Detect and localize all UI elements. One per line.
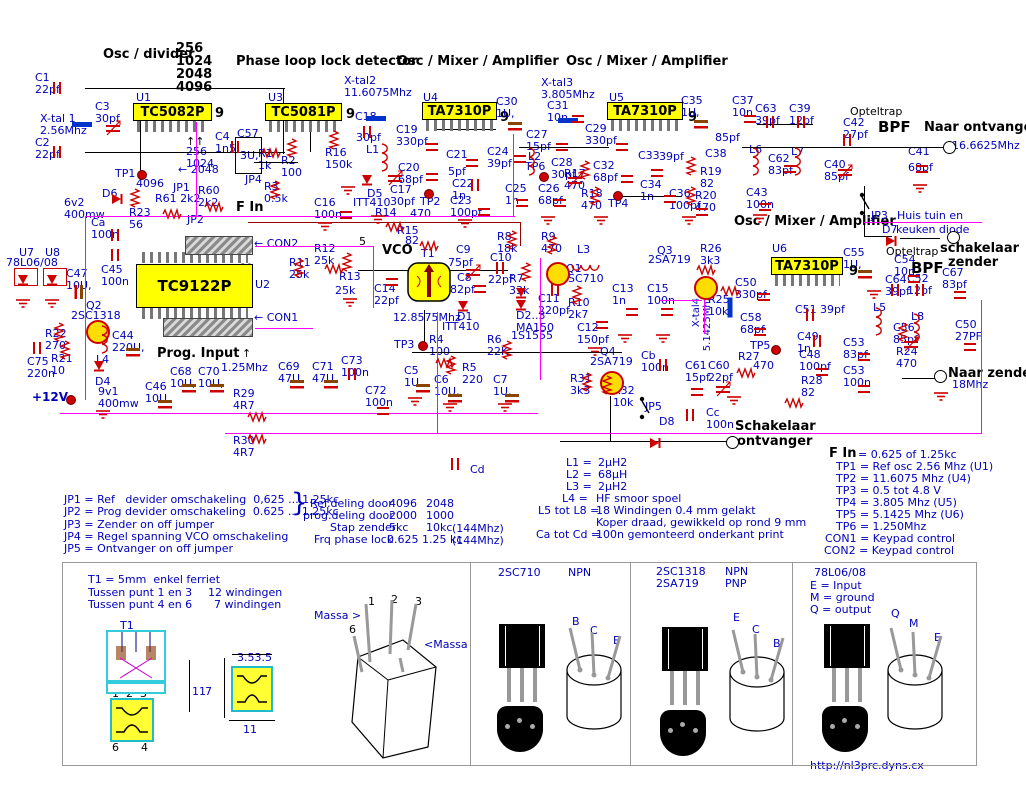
resistor-symbol: [57, 341, 76, 359]
capacitor-symbol: [474, 278, 486, 297]
capacitor-symbol: [626, 301, 638, 320]
wire: [540, 258, 541, 380]
connector-circle: [726, 436, 739, 449]
resistor-symbol: [248, 406, 266, 425]
package-lead: [683, 671, 687, 705]
pin-dot: [517, 718, 522, 723]
transistor-can-3d: [887, 644, 944, 740]
schematic-label: 5kc: [389, 522, 408, 534]
resistor-symbol: [504, 231, 523, 249]
ic-pins: [611, 120, 680, 131]
capacitor-symbol: [377, 400, 389, 419]
schematic-label: TP6 = 1.250Mhz: [836, 521, 926, 533]
resistor-symbol: [785, 392, 803, 411]
schematic-label: X-tal4: [692, 298, 703, 327]
pin-dot: [680, 722, 685, 727]
schematic-label: 470: [410, 208, 431, 220]
panel-divider: [792, 562, 793, 766]
schematic-label: L4 =: [562, 493, 588, 505]
inductor-symbol: [871, 308, 881, 339]
connector-circle: [943, 141, 956, 154]
schematic-label: 1000: [426, 510, 454, 522]
schematic-label: JP4: [245, 174, 262, 186]
schematic-label: X-tal3 3.805Mhz: [541, 77, 595, 100]
capacitor-symbol: [655, 359, 674, 371]
wire: [845, 147, 945, 148]
schematic-label: Osc / Mixer / Amplifier: [566, 55, 728, 69]
schematic-label: 9: [215, 107, 224, 121]
schematic-label: C38: [705, 148, 727, 160]
testpoint-dot: [613, 191, 623, 201]
resistor-symbol: [127, 189, 146, 207]
capacitor-symbol: [758, 286, 770, 305]
capacitor-symbol: [596, 314, 608, 333]
ground-symbol: [656, 328, 670, 347]
capacitor-symbol: [514, 148, 526, 167]
schematic-label: 39pf: [820, 304, 845, 316]
schematic-label: C61 15pf: [685, 360, 710, 383]
schematic-label: 78L06/08: [6, 257, 58, 269]
ground-symbol: [371, 209, 385, 228]
electrolytic-capacitor-symbol: [858, 264, 872, 283]
transistor-bottom-view: [660, 710, 706, 756]
capacitor-symbol: [556, 136, 568, 155]
ground-symbol: [753, 208, 767, 227]
wire: [85, 216, 515, 217]
transistor-can-3d: [729, 646, 786, 742]
schematic-label: U2: [255, 279, 270, 291]
wire: [424, 310, 425, 344]
capacitor-symbol: [621, 168, 633, 187]
schematic-label: prog.deling door: [303, 510, 394, 522]
capacitor-symbol: [554, 192, 566, 211]
schematic-label: Ref.deling door: [310, 498, 393, 510]
package-detail-line: [668, 629, 669, 669]
schematic-label: ← 2048: [178, 164, 219, 176]
resistor-symbol: [737, 362, 755, 381]
electrolytic-capacitor-symbol: [126, 342, 140, 361]
ic-u2: TC9122P: [136, 264, 253, 308]
schematic-label: 5pf: [448, 166, 466, 178]
connector-circle: [934, 370, 947, 383]
schematic-label: = 0.625 of 1.25kc: [858, 449, 957, 461]
schematic-label: TP5 = 5.1425 Mhz (U6): [836, 509, 964, 521]
capacitor-symbol: [696, 201, 708, 220]
resistor-symbol: [544, 236, 563, 254]
ground-symbol: [16, 293, 30, 312]
package-lead: [696, 671, 700, 705]
package-detail-line: [505, 626, 506, 666]
resistor-symbol: [518, 263, 537, 281]
diode-symbol: [110, 190, 124, 209]
schematic-label: R5 220: [462, 362, 483, 385]
schematic-label: 2000: [389, 510, 417, 522]
capacitor-symbol: [344, 368, 363, 380]
ground-symbol: [618, 328, 632, 347]
schematic-label: X-tal2 11.6075Mhz: [344, 75, 412, 98]
schematic-label: 0.625: [387, 534, 419, 546]
resistor-symbol: [579, 373, 598, 391]
capacitor-symbol: [447, 458, 466, 470]
resistor-symbol: [599, 376, 618, 394]
schematic-label: 16.6625Mhz: [952, 140, 1020, 152]
wire: [255, 328, 313, 329]
package-lead: [520, 668, 524, 702]
schematic-label: Huis tuin en: [897, 210, 963, 222]
dimension-line: [224, 658, 225, 718]
wire: [85, 88, 285, 89]
electrolytic-capacitor-symbol: [508, 116, 522, 135]
wire: [981, 300, 982, 434]
vco-transformer-box: [407, 262, 451, 302]
panel-divider: [470, 562, 471, 766]
t1-base-drawing: [106, 682, 166, 694]
ic-pins: [426, 120, 494, 131]
schematic-label: HF smoor spoel: [596, 493, 681, 505]
schematic-label: 82pf: [450, 284, 475, 296]
testpoint-dot: [418, 341, 428, 351]
ic-pins: [137, 121, 209, 132]
ground-symbol: [318, 216, 332, 235]
capacitor-symbol: [478, 201, 490, 220]
wire: [513, 134, 514, 217]
capacitor-symbol: [908, 268, 920, 287]
capacitor-symbol: [793, 116, 812, 128]
con2-connector: [185, 236, 253, 255]
capacitor-symbol: [954, 284, 966, 303]
schematic-label: 9: [346, 108, 355, 122]
capacitor-symbol: [572, 108, 584, 127]
capacitor-symbol: [616, 136, 628, 155]
electrolytic-capacitor-symbol: [324, 374, 338, 393]
ic-u5: TA7310P: [607, 102, 683, 120]
capacitor-symbol: [227, 141, 246, 153]
schematic-label: 100n gemonteerd onderkant print: [596, 529, 784, 541]
pin-dot: [530, 724, 535, 729]
trimmer-capacitor-symbol: [388, 170, 404, 190]
schematic-label: 10kc: [426, 522, 452, 534]
transistor-package-front: [499, 624, 545, 668]
capacitor-symbol: [839, 134, 858, 146]
schematic-label: 18Mhz: [952, 379, 988, 391]
schematic-label: 18 Windingen 0.4 mm gelakt: [596, 505, 756, 517]
capacitor-symbol: [466, 152, 478, 171]
con1-connector: [163, 318, 253, 337]
t1-winding-drawing: [106, 630, 166, 682]
ic-u6: TA7310P: [771, 257, 843, 275]
schematic-label: 39pf: [659, 151, 684, 163]
testpoint-dot: [771, 345, 781, 355]
schematic-label: U3: [268, 92, 283, 104]
diode-symbol: [42, 273, 61, 287]
jumper-switch: [638, 396, 650, 424]
schematic-label: 2SA719: [648, 254, 691, 266]
inductor-symbol: [748, 148, 758, 179]
electrolytic-capacitor-symbol: [694, 114, 708, 133]
dimension-line: [229, 720, 275, 721]
schematic-label: TP1: [115, 168, 135, 180]
schematic-label: Stap zender: [330, 522, 396, 534]
diode-symbol: [511, 298, 530, 312]
ground-symbol: [96, 404, 110, 423]
resistor-symbol: [326, 131, 345, 149]
wire: [560, 441, 728, 442]
capacitor-symbol: [784, 158, 796, 177]
electrolytic-capacitor-symbol: [182, 378, 196, 397]
inductor-symbol: [377, 144, 387, 175]
capacitor-symbol: [49, 82, 68, 94]
schematic-label: Phase loop lock detector: [236, 55, 417, 69]
diode-symbol: [13, 273, 32, 287]
testpoint-dot: [66, 395, 76, 405]
schematic-label: JP3 = Zender on off jumper: [64, 519, 214, 531]
ferrite-core-drawing: [231, 666, 273, 712]
capacitor-symbol: [29, 342, 48, 354]
schematic-label: ← CON1: [254, 312, 298, 324]
schematic-label: 1.25Mhz: [221, 362, 268, 374]
capacitor-symbol: [516, 192, 528, 211]
schematic-label: Cd: [470, 464, 485, 476]
wire: [225, 433, 982, 434]
pin-dot: [842, 718, 847, 723]
crystal-symbol: [728, 298, 733, 318]
ground-symbol: [408, 391, 422, 410]
resistor-symbol: [499, 341, 518, 359]
ic-u3: TC5081P: [265, 103, 342, 121]
schematic-label: 256 1024 2048 4096: [176, 42, 212, 94]
ground-symbol: [588, 341, 602, 360]
pin-dot: [830, 724, 835, 729]
wire: [358, 270, 410, 271]
schematic-label: 68µH: [598, 469, 627, 481]
capacitor-symbol: [964, 336, 976, 355]
schematic-label: ↑: [242, 348, 251, 360]
resistor-symbol: [569, 286, 588, 304]
schematic-label: C33: [638, 150, 660, 162]
connector-circle: [947, 231, 960, 244]
resistor-symbol: [697, 259, 715, 278]
schematic-label: F In: [829, 447, 857, 461]
package-detail-line: [830, 626, 831, 666]
capacitor-symbol: [426, 136, 438, 155]
crystal-symbol: [366, 116, 386, 121]
wire: [373, 246, 374, 308]
wire: [864, 222, 982, 223]
diode-symbol: [89, 359, 108, 373]
capacitor-symbol: [661, 301, 673, 320]
schematic-label: L1 =: [566, 457, 592, 469]
schematic-label: Schakelaar: [735, 420, 816, 434]
capacitor-symbol: [682, 409, 701, 421]
wire: [900, 238, 940, 239]
capacitor-symbol: [651, 162, 663, 181]
pin-dot: [693, 728, 698, 733]
resistor-symbol: [248, 428, 266, 447]
resistor-symbol: [267, 181, 286, 199]
package-lead: [533, 668, 537, 702]
schematic-label: schakelaar: [940, 242, 1019, 256]
ground-symbol: [45, 293, 59, 312]
pin-dot: [505, 724, 510, 729]
resistor-symbol: [205, 196, 223, 215]
schematic-label: Cc 100n: [706, 407, 734, 430]
schematic-label: C34 1n: [640, 179, 662, 202]
electrolytic-capacitor-symbol: [290, 374, 304, 393]
jumper-switch: [858, 192, 870, 220]
transistor-package-front: [824, 624, 870, 668]
resistor-symbol: [683, 157, 702, 175]
package-detail-line: [864, 626, 865, 666]
schematic-label: 2048: [426, 498, 454, 510]
resistor-symbol: [51, 323, 70, 341]
ic-u4: TA7310P: [422, 102, 497, 120]
electrolytic-capacitor-symbol: [158, 394, 172, 413]
schematic-label: BPF: [878, 120, 911, 136]
ic-pins: [775, 275, 840, 286]
schematic-canvas: Osc / divider256 1024 2048 4096Phase loo…: [0, 0, 1026, 786]
capacitor-symbol: [816, 361, 828, 380]
schematic-label: Koper draad, gewikkeld op rond 9 mm: [596, 517, 806, 529]
schematic-label: 470: [753, 360, 774, 372]
transistor-bottom-view: [497, 706, 543, 752]
schematic-label: F In: [236, 201, 264, 215]
resistor-symbol: [721, 280, 739, 299]
package-lead: [507, 668, 511, 702]
resistor-symbol: [163, 203, 181, 222]
inductor-symbol: [97, 326, 107, 357]
schematic-label: (144Mhz): [452, 535, 504, 547]
schematic-label: JP4 = Regel spanning VCO omschakeling: [64, 531, 288, 543]
ic-u1: TC5082P: [133, 103, 212, 121]
schematic-label: 2µH2: [598, 457, 627, 469]
pin-dot: [855, 724, 860, 729]
electrolytic-capacitor-symbol: [70, 285, 89, 299]
ground-symbol: [867, 284, 881, 303]
wire: [704, 298, 705, 334]
schematic-label: TP3: [394, 339, 414, 351]
schematic-label: U1: [136, 92, 151, 104]
resistor-symbol: [587, 187, 606, 205]
transistor-can-3d: [566, 644, 623, 740]
ground-symbol: [541, 210, 555, 229]
schematic-label: U6: [772, 243, 787, 255]
schematic-label: 4096: [389, 498, 417, 510]
dimension-line: [189, 660, 190, 712]
schematic-label: 82: [405, 235, 419, 247]
package-lead: [858, 668, 862, 702]
wire: [437, 312, 438, 434]
schematic-label: JP3: [871, 210, 888, 222]
ground-symbol: [682, 210, 696, 229]
resistor-symbol: [386, 216, 404, 235]
inductor-symbol: [568, 260, 599, 270]
diode-symbol: [453, 299, 472, 313]
schematic-label: L5 tot L8 =: [538, 505, 599, 517]
schematic-label: D8: [659, 416, 674, 428]
schematic-label: Prog. Input: [157, 347, 240, 361]
panel-divider: [630, 562, 631, 766]
capacitor-symbol: [744, 108, 756, 127]
capacitor-symbol: [359, 126, 378, 138]
trimmer-capacitor-symbol: [838, 164, 854, 184]
schematic-label: C32 68pf: [593, 160, 618, 183]
capacitor-symbol: [858, 378, 870, 397]
wire: [610, 396, 611, 442]
capacitor-symbol: [49, 146, 68, 158]
capacitor-symbol: [691, 381, 703, 400]
ground-symbol: [727, 390, 741, 409]
schematic-label: +12V: [32, 391, 68, 404]
schematic-label: C21: [446, 149, 468, 161]
capacitor-symbol: [107, 229, 126, 241]
schematic-label: Osc / Mixer / Amplifier: [397, 55, 559, 69]
capacitor-symbol: [887, 284, 906, 296]
diode-symbol: [357, 173, 376, 187]
trimmer-capacitor-symbol: [568, 172, 584, 192]
capacitor-symbol: [107, 249, 126, 261]
transistor-circle: [546, 262, 570, 286]
capacitor-symbol: [467, 179, 486, 191]
capacitor-symbol: [754, 321, 766, 340]
package-lead: [845, 668, 849, 702]
schematic-label: C24 39pf: [487, 146, 512, 169]
wire: [85, 216, 86, 400]
trimmer-capacitor-symbol: [904, 336, 920, 356]
schematic-label: L3: [577, 244, 590, 256]
testpoint-dot: [424, 189, 434, 199]
schematic-label: C9: [456, 244, 471, 256]
crystal-symbol: [72, 122, 92, 127]
ground-symbol: [458, 213, 472, 232]
schematic-label: C11 220pf: [538, 293, 570, 316]
schematic-label: CON2 = Keypad control: [824, 545, 954, 557]
schematic-label: TP1 = Ref osc 2.56 Mhz (U1): [836, 461, 993, 473]
schematic-label: R2 100: [281, 155, 302, 178]
schematic-label: 1S1555: [511, 330, 553, 342]
capacitor-symbol: [386, 271, 398, 290]
ground-symbol: [498, 397, 512, 416]
ground-symbol: [594, 210, 608, 229]
schematic-label: Ca tot Cd =: [536, 529, 600, 541]
capacitor-symbol: [547, 284, 566, 296]
schematic-label: Naar ontvanger: [924, 121, 1026, 135]
schematic-label: JP5 = Ontvanger on off jumper: [64, 543, 233, 555]
resistor-symbol: [339, 253, 358, 271]
schematic-label: L2 =: [566, 469, 592, 481]
schematic-label: 85pf: [715, 132, 740, 144]
schematic-label: 2µH2: [598, 481, 627, 493]
schematic-label: C45 100n: [101, 264, 129, 287]
schematic-label: C19 330pf: [396, 124, 428, 147]
schematic-label: C60 22pf: [708, 360, 733, 383]
resistor-symbol: [443, 356, 462, 374]
schematic-label: TP2 = 11.6075 Mhz (U4): [836, 473, 971, 485]
transformer-3d-sketch: [348, 632, 438, 766]
ground-symbol: [913, 178, 927, 197]
wire: [196, 122, 197, 216]
electrolytic-capacitor-symbol: [210, 378, 224, 397]
package-lead: [670, 671, 674, 705]
testpoint-dot: [137, 170, 147, 180]
package-detail-line: [702, 629, 703, 669]
package-detail-line: [539, 626, 540, 666]
testpoint-dot: [539, 172, 549, 182]
ground-symbol: [343, 292, 357, 311]
resistor-symbol: [262, 142, 280, 161]
schematic-label: R19 82: [700, 166, 722, 189]
capacitor-symbol: [809, 335, 828, 347]
schematic-label: 9: [849, 265, 858, 279]
